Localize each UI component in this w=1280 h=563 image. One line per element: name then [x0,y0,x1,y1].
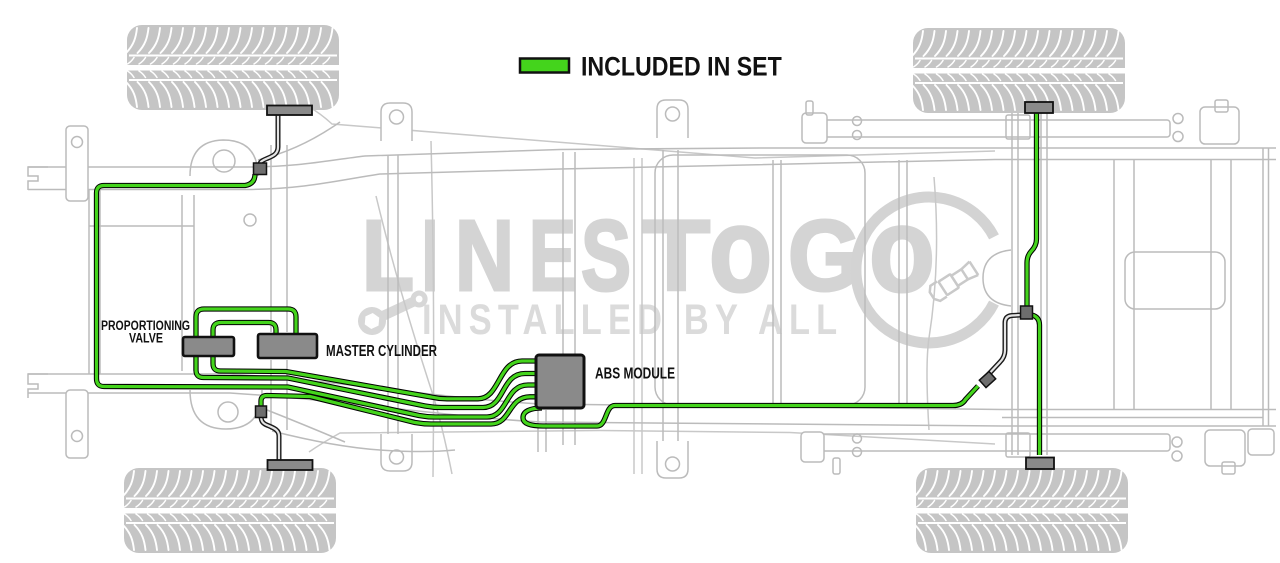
svg-text:VALVE: VALVE [129,330,163,346]
svg-text:G: G [788,200,861,312]
svg-text:ABS MODULE: ABS MODULE [595,365,675,383]
svg-text:E: E [529,200,576,312]
svg-text:INCLUDED IN SET: INCLUDED IN SET [581,52,782,82]
svg-text:N: N [455,200,514,312]
svg-text:T: T [643,200,710,312]
svg-text:MASTER CYLINDER: MASTER CYLINDER [326,342,437,360]
svg-text:S: S [581,200,631,312]
